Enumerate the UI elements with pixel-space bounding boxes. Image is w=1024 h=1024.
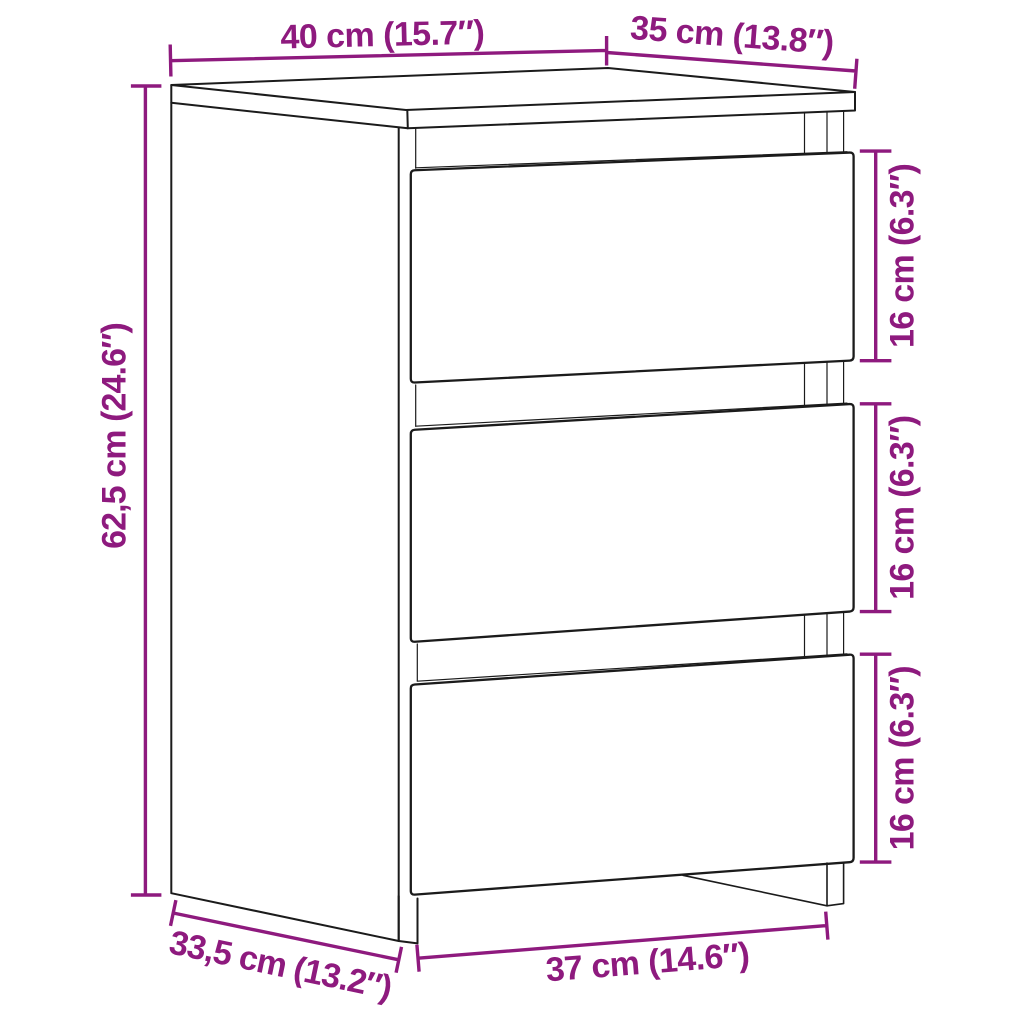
- svg-text:62,5 cm (24.6″): 62,5 cm (24.6″): [96, 323, 134, 549]
- svg-text:16 cm (6.3″): 16 cm (6.3″): [884, 666, 922, 850]
- svg-text:40 cm (15.7″): 40 cm (15.7″): [280, 14, 485, 57]
- svg-text:16 cm (6.3″): 16 cm (6.3″): [884, 164, 922, 348]
- svg-text:16 cm (6.3″): 16 cm (6.3″): [884, 416, 922, 600]
